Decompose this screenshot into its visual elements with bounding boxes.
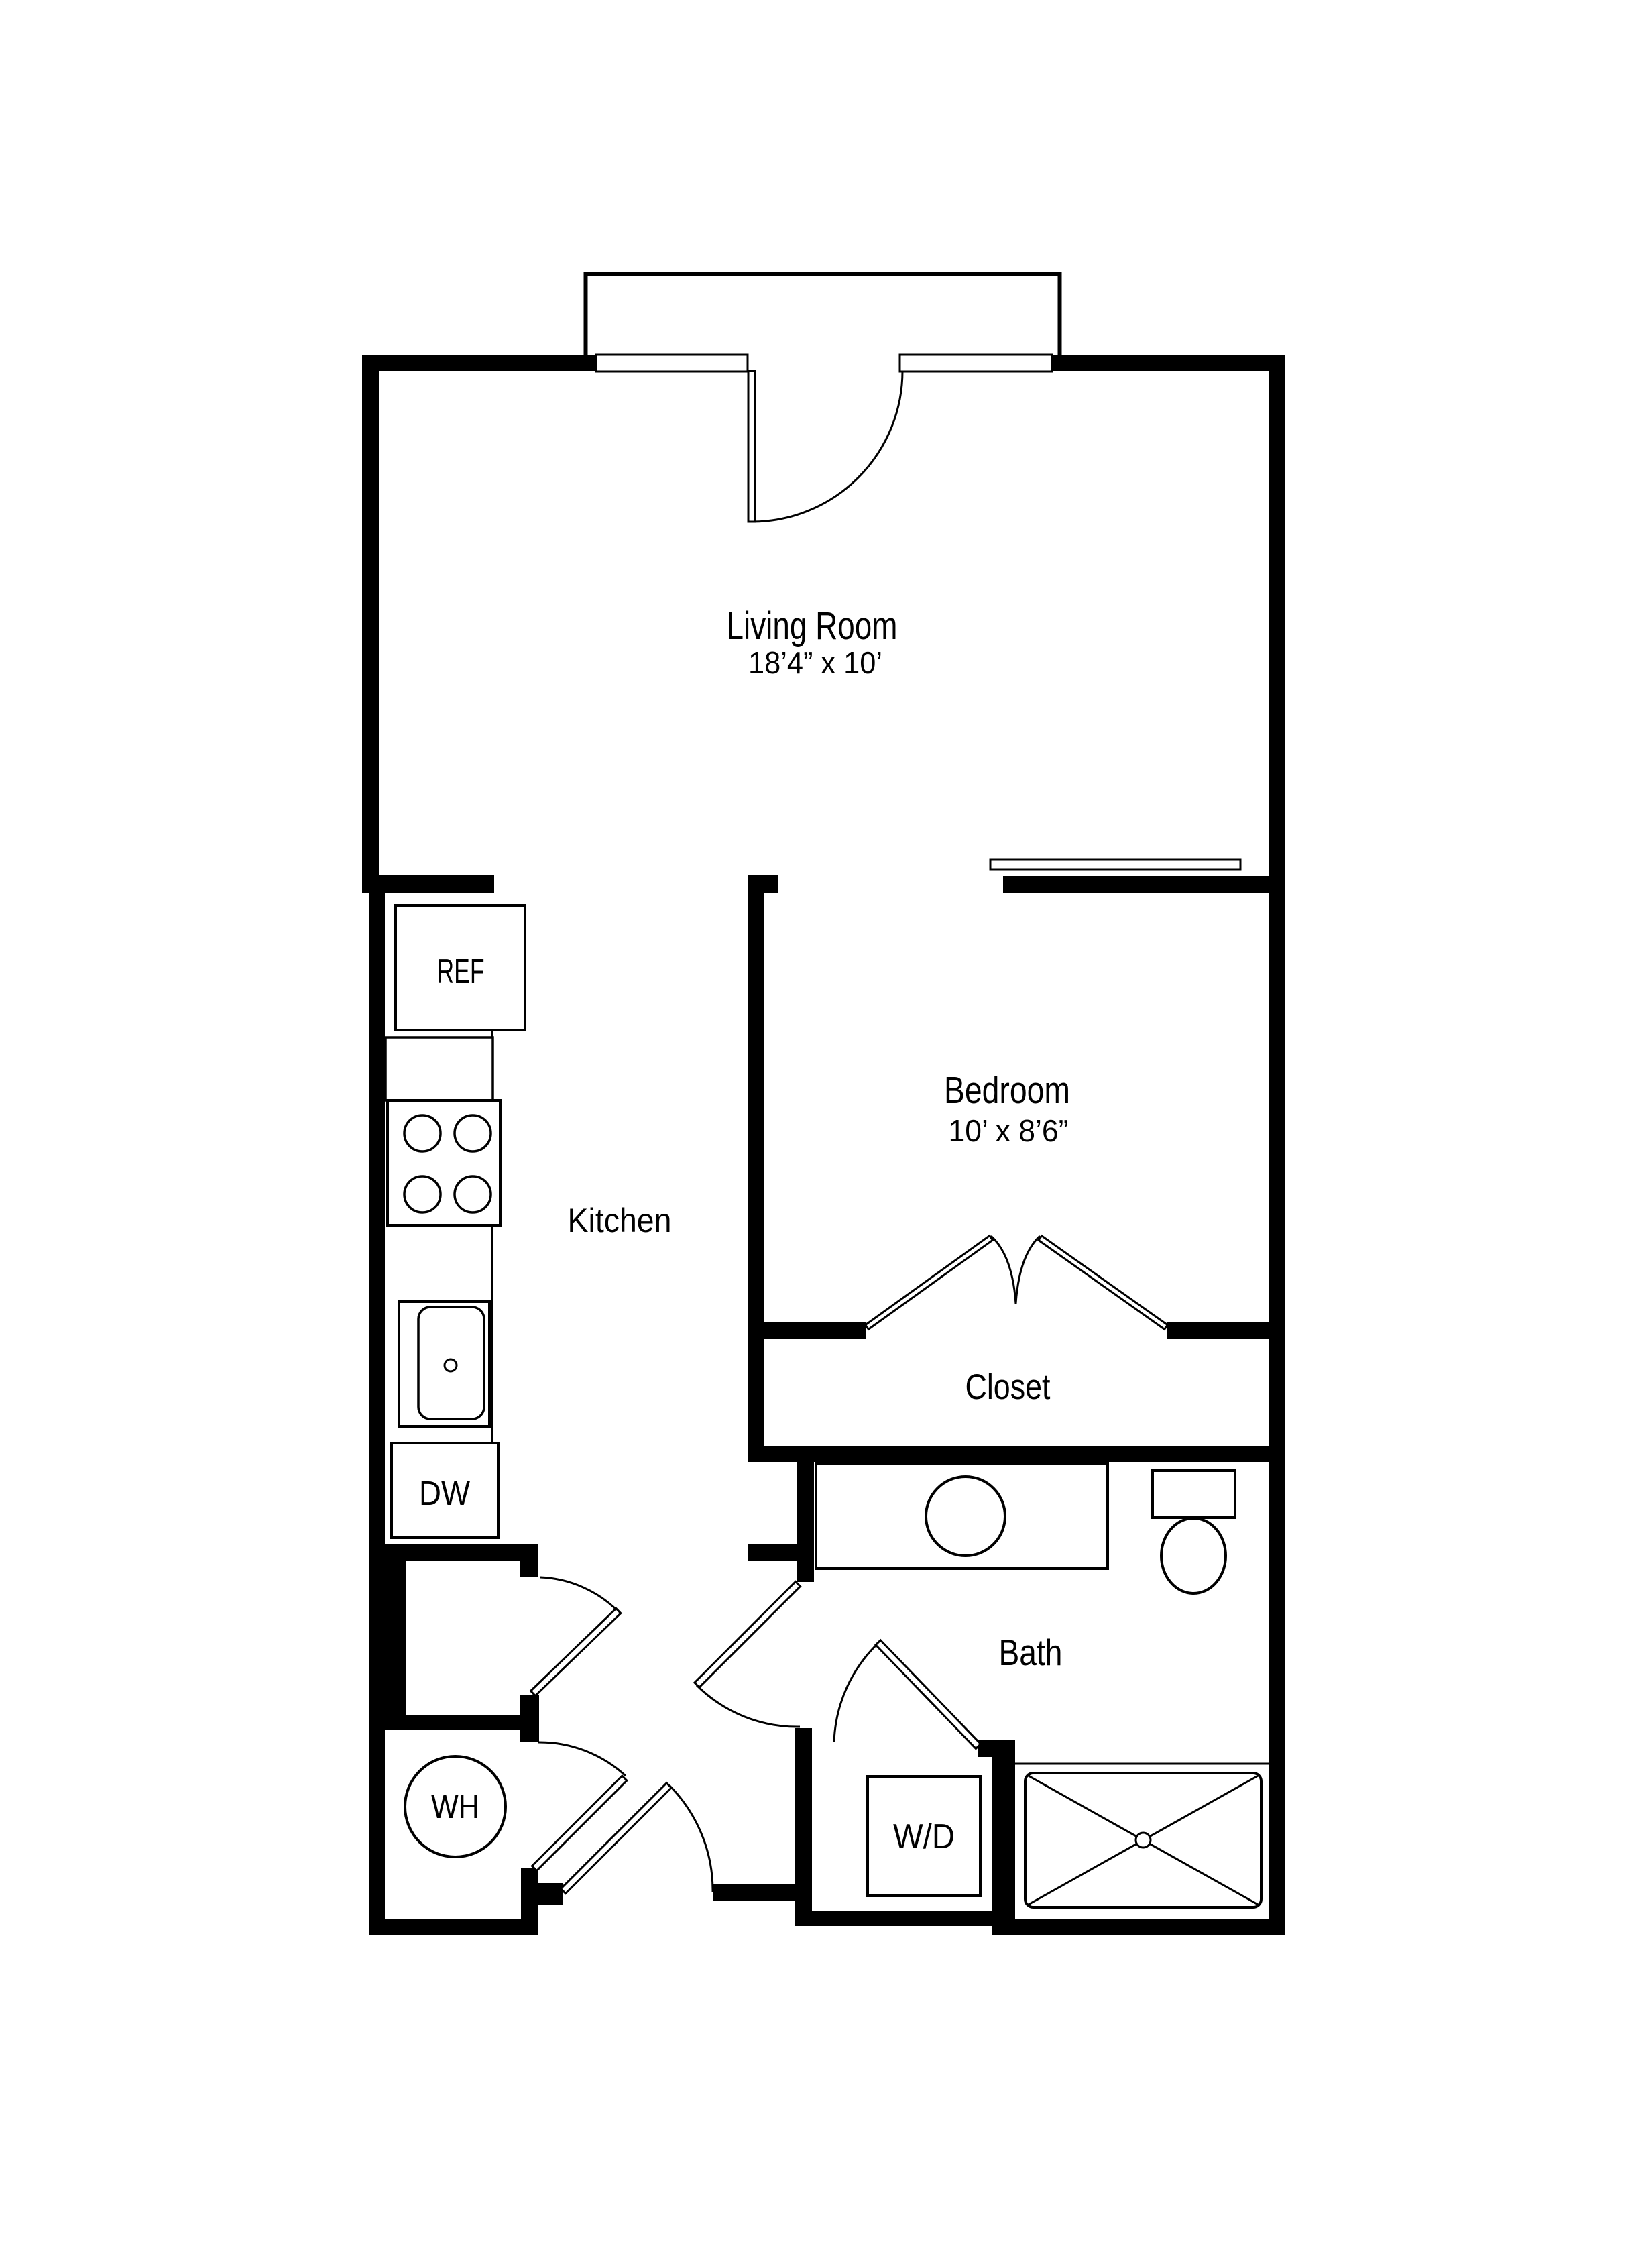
svg-text:18’4” x 10’: 18’4” x 10’	[748, 645, 882, 680]
svg-text:REF: REF	[437, 952, 485, 991]
svg-text:Kitchen: Kitchen	[568, 1202, 672, 1239]
svg-text:Closet: Closet	[966, 1367, 1051, 1407]
svg-text:Bath: Bath	[999, 1632, 1063, 1673]
svg-text:WH: WH	[431, 1788, 479, 1825]
svg-text:Living Room: Living Room	[727, 604, 898, 648]
svg-text:DW: DW	[419, 1474, 470, 1512]
svg-text:Bedroom: Bedroom	[944, 1069, 1070, 1112]
svg-text:10’ x 8’6”: 10’ x 8’6”	[949, 1113, 1069, 1148]
svg-text:W/D: W/D	[893, 1817, 955, 1856]
